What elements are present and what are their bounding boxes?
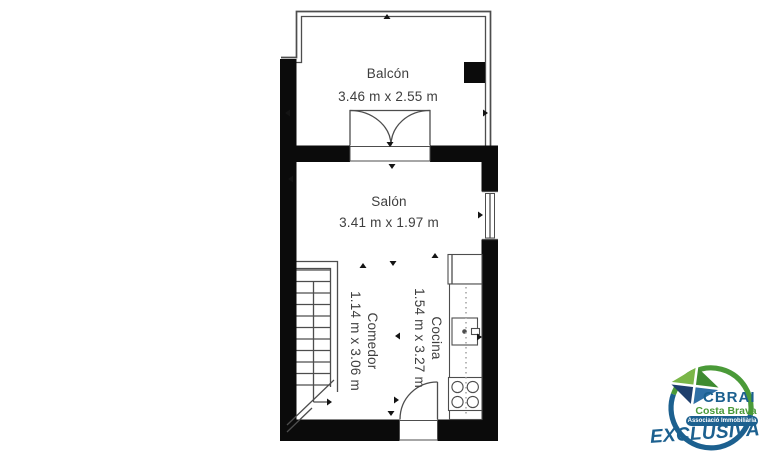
burner bbox=[467, 396, 478, 407]
logo-brand-text: CBRAI bbox=[703, 389, 755, 406]
living-room-dimensions: 3.41 m x 1.97 m bbox=[289, 215, 489, 230]
balcony-label: Balcón bbox=[288, 66, 488, 81]
burner bbox=[452, 396, 463, 407]
floor-plan-page: Balcón 3.46 m x 2.55 m Salón 3.41 m x 1.… bbox=[0, 0, 770, 460]
burner bbox=[467, 381, 478, 392]
dining-room-dimensions: 1.14 m x 3.06 m bbox=[347, 291, 364, 391]
agency-logo: CBRAI Costa Brava Associació Immobiliàri… bbox=[645, 353, 769, 460]
entry-door bbox=[400, 382, 438, 440]
faucet bbox=[472, 329, 480, 335]
kitchen-dimensions: 1.54 m x 3.27 m bbox=[411, 288, 428, 388]
kitchen-fixtures bbox=[448, 255, 482, 420]
dining-room-label-block: Comedor 1.14 m x 3.06 m bbox=[347, 291, 381, 391]
appliance bbox=[448, 255, 482, 285]
kitchen-label: Cocina bbox=[428, 288, 445, 388]
living-room-label: Salón bbox=[289, 194, 489, 209]
dining-room-label: Comedor bbox=[364, 291, 381, 391]
balcony-dimensions: 3.46 m x 2.55 m bbox=[288, 89, 488, 104]
balcony-double-door bbox=[350, 111, 430, 162]
burner bbox=[452, 381, 463, 392]
kitchen-label-block: Cocina 1.54 m x 3.27 m bbox=[411, 288, 445, 388]
stair-direction-arrow bbox=[327, 399, 332, 406]
